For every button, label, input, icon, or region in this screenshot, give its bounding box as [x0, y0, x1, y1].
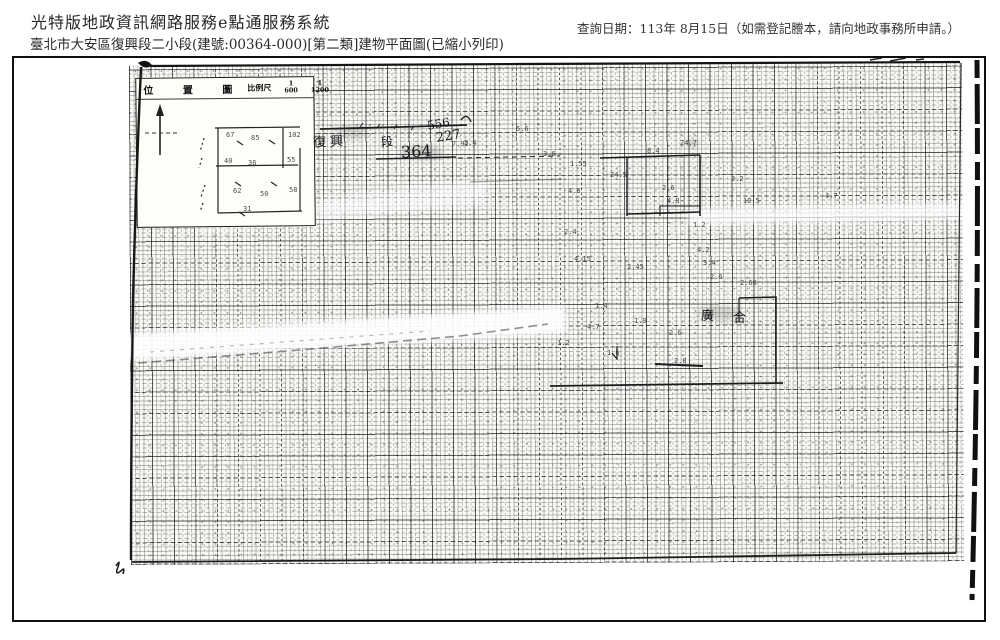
location-inset: 位 置 圖 比例尺 1 600 1 1200	[135, 76, 316, 228]
ink-smudge	[398, 146, 444, 159]
document-subtitle: 臺北市大安區復興段二小段(建號:00364-000)[第二類]建物平面圖(已縮小…	[30, 33, 504, 53]
scale-fraction-1200: 1 1200	[311, 80, 329, 94]
ink-smudge	[684, 139, 700, 147]
scale-1200-denominator: 1200	[311, 87, 329, 94]
ink-smudge	[334, 126, 368, 139]
ink-smudge	[698, 306, 740, 321]
scale-600-denominator: 600	[284, 87, 298, 94]
scale-fraction-600: 1 600	[284, 80, 298, 94]
scale-label: 比例尺	[247, 81, 271, 94]
inset-header: 位 置 圖 比例尺 1 600 1 1200	[136, 77, 313, 100]
inset-title: 位 置 圖	[143, 81, 245, 97]
system-title: 光特版地政資訊網路服務e點通服務系統	[31, 9, 330, 33]
query-date: 查詢日期：113年 8月15日（如需登記謄本，請向地政事務所申請。）	[577, 18, 960, 37]
land-registry-printout: { "header": { "system_title": "光特版地政資訊網路…	[0, 0, 1000, 640]
